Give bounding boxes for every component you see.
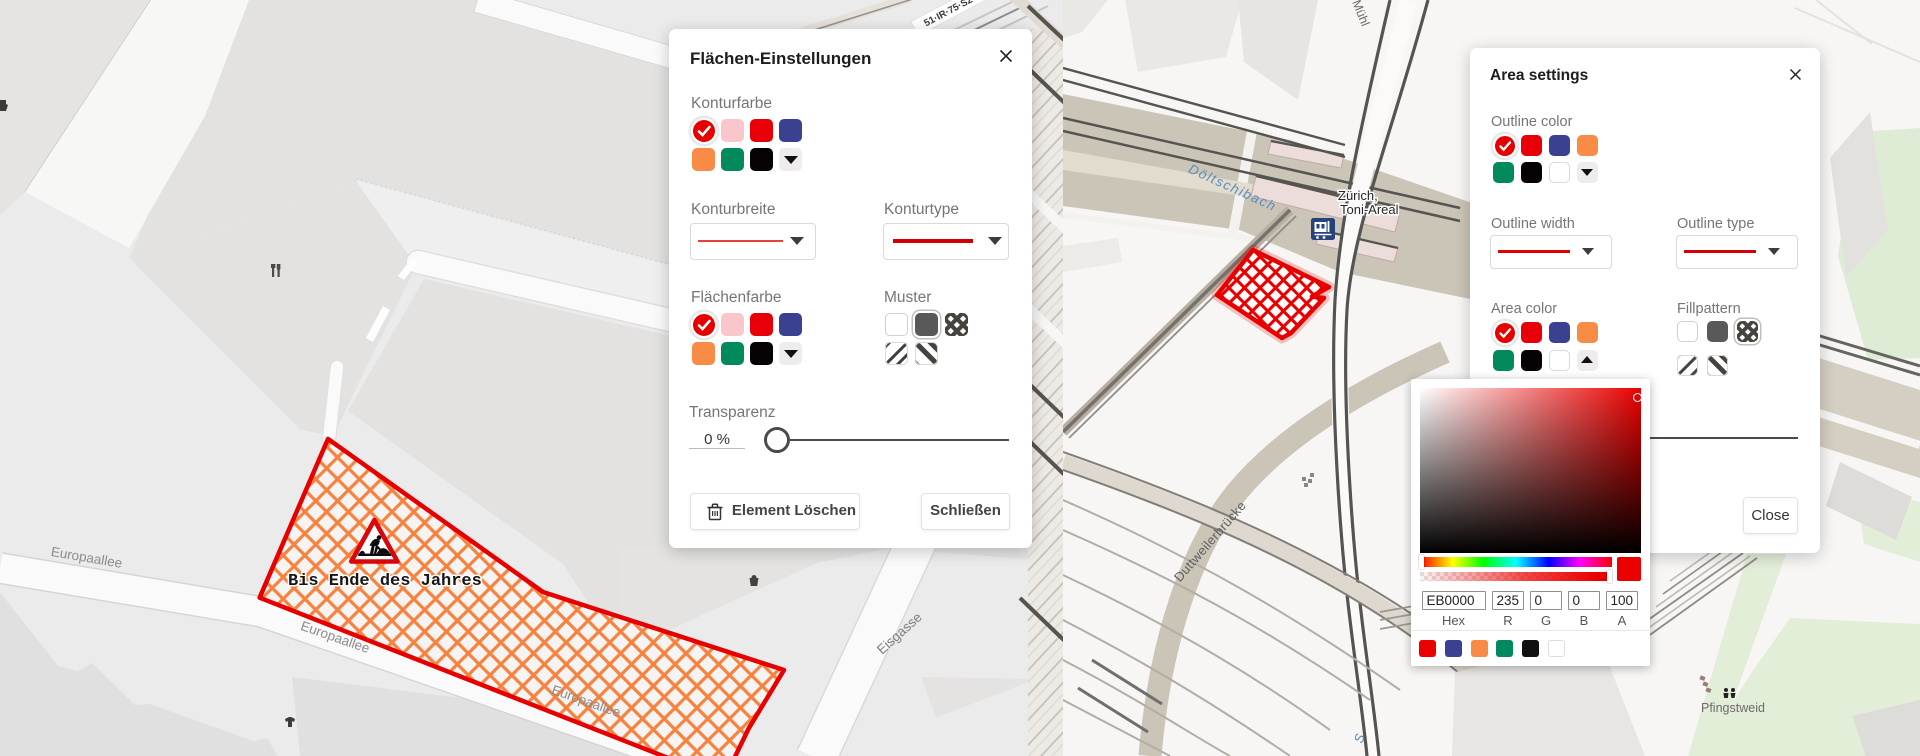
svg-text:Zürich,: Zürich, <box>1338 188 1378 203</box>
svg-text:Bis Ende des Jahres: Bis Ende des Jahres <box>288 572 482 591</box>
svg-text:Toni-Areal: Toni-Areal <box>1340 202 1399 217</box>
svg-text:Pfingstweid: Pfingstweid <box>1701 701 1765 715</box>
